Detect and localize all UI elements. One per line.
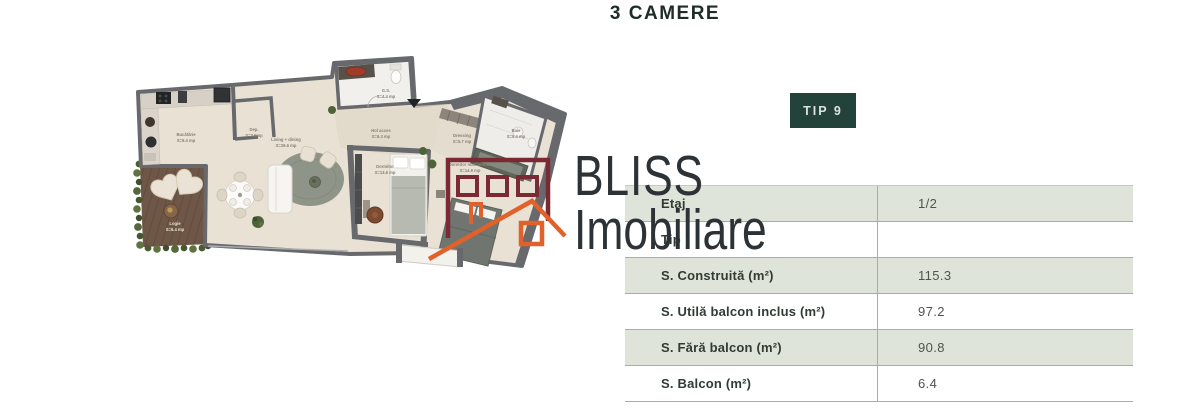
spec-value: 97.2 [878, 294, 1133, 329]
room-label: Dormitor matrimonial [449, 162, 492, 167]
room-area: S=6.4 mp [166, 227, 185, 232]
plant-icon [428, 160, 437, 169]
room-area: S=5.4 mp [507, 134, 526, 139]
spec-value: 115.3 [878, 258, 1133, 293]
room-label: Dressing [453, 133, 471, 138]
spec-table: Etaj 1/2 Tip S. Construită (m²) 115.3 S.… [625, 185, 1133, 402]
room-area: S=14.9 mp [460, 168, 481, 173]
table-row: S. Construită (m²) 115.3 [625, 258, 1133, 294]
spec-label: Etaj [625, 186, 878, 221]
table-row: S. Balcon (m²) 6.4 [625, 366, 1133, 402]
room-area: S=6.3 mp [372, 134, 391, 139]
spec-label: S. Fără balcon (m²) [625, 330, 878, 365]
gs-bathroom [336, 60, 413, 108]
room-label: Bucătărie [176, 132, 196, 137]
room-label: Dep. [249, 127, 258, 132]
spec-label: S. Utilă balcon inclus (m²) [625, 294, 878, 329]
room-label: Dormitor [376, 164, 394, 169]
page-title: 3 CAMERE [560, 3, 770, 25]
room-area: S=2.5mp [245, 133, 263, 138]
room-area: S=9.4 mp [177, 138, 196, 143]
page: { "page": { "title": "3 CAMERE" }, "badg… [0, 0, 1200, 414]
plant-icon [419, 147, 427, 155]
spec-label: S. Balcon (m²) [625, 366, 878, 401]
table-row: Tip [625, 222, 1133, 258]
room-area: S=26.6 mp [276, 143, 297, 148]
room-label: Logie [169, 221, 181, 226]
spec-label: Tip [625, 222, 878, 257]
spec-value: 90.8 [878, 330, 1133, 365]
spec-label: S. Construită (m²) [625, 258, 878, 293]
tip-badge-label: TIP 9 [803, 104, 843, 118]
room-area: S=5.7 mp [453, 139, 472, 144]
plant-icon [328, 106, 336, 114]
spec-value: 1/2 [878, 186, 1133, 221]
table-row: S. Utilă balcon inclus (m²) 97.2 [625, 294, 1133, 330]
table-row: S. Fără balcon (m²) 90.8 [625, 330, 1133, 366]
room-area: S=13.6 mp [375, 170, 396, 175]
room-label: G.S. [382, 88, 390, 93]
spec-value: 6.4 [878, 366, 1133, 401]
tip-badge: TIP 9 [790, 93, 856, 128]
spec-value [878, 222, 1133, 257]
floorplan-image: Bucătărie S=9.4 mp Dep. S=2.5mp Living +… [118, 48, 578, 273]
table-row: Etaj 1/2 [625, 186, 1133, 222]
room-label: Living + dining [271, 137, 301, 142]
room-label: Hol acces [371, 128, 391, 133]
room-label: Baie [512, 128, 522, 133]
room-area: S=4.4 mp [377, 94, 396, 99]
